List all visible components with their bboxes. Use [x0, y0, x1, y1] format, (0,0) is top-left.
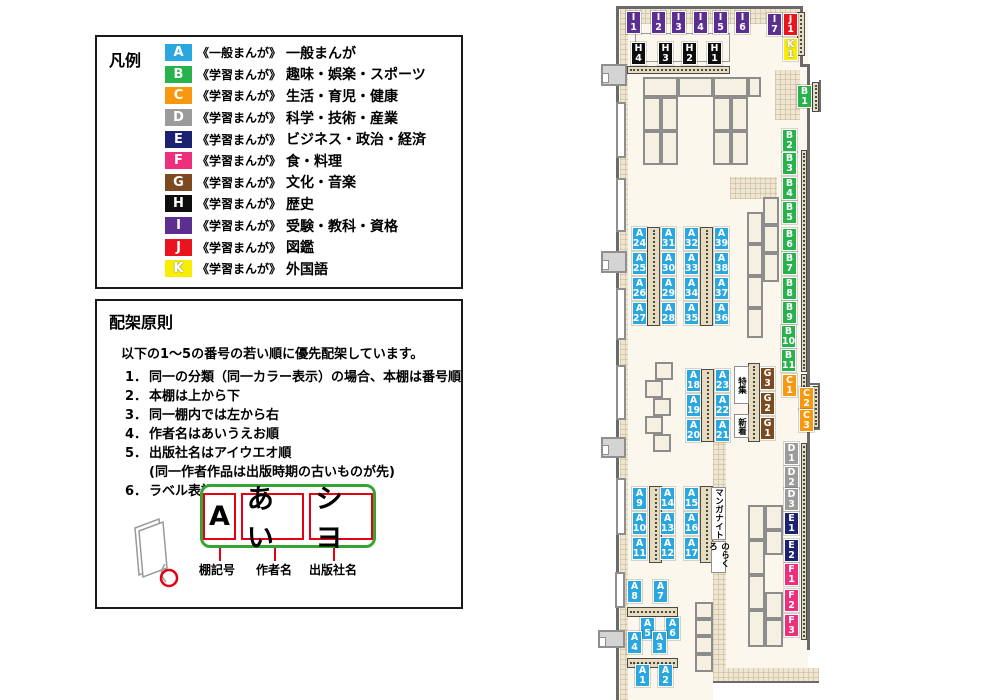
label-letter: B — [801, 87, 808, 97]
legend-category: 外国語 — [286, 259, 328, 279]
window — [616, 365, 626, 420]
label-number: 5 — [644, 629, 651, 639]
reading-table — [763, 225, 779, 253]
legend-type: 《学習まんが》 — [197, 260, 281, 277]
pointer-line — [274, 548, 276, 561]
rule-text: 同一の分類（同一カラー表示）の場合、本棚は番号順 — [149, 368, 461, 387]
label-number: 17 — [685, 549, 698, 559]
legend-type: 《学習まんが》 — [197, 195, 281, 212]
label-letter: A — [664, 489, 671, 499]
label-letter: I — [773, 15, 777, 25]
shelf-label-D1: D1 — [784, 442, 799, 465]
label-letter: E — [788, 514, 795, 524]
shelf-label-I2: I2 — [651, 11, 666, 34]
label-number: 37 — [715, 289, 728, 299]
shelf-label-A9: A9 — [632, 487, 647, 510]
label-number: 2 — [686, 54, 693, 64]
label-number: 3 — [764, 379, 771, 389]
pointer-line — [333, 548, 335, 561]
shelf-label-B9: B9 — [782, 301, 797, 324]
reading-table — [643, 131, 661, 165]
shelf-label-A2: A2 — [658, 664, 673, 687]
shelf-label-A33: A33 — [684, 252, 699, 275]
label-number: 10 — [782, 337, 795, 347]
label-letter: H — [662, 44, 670, 54]
window — [616, 288, 626, 340]
rule-number: 3． — [125, 406, 149, 425]
legend-type: 《一般まんが》 — [197, 44, 281, 61]
label-letter: A — [636, 279, 643, 289]
label-letter: B — [785, 327, 792, 337]
book-icon — [125, 514, 183, 590]
shelf-label-D3: D3 — [784, 488, 799, 511]
label-number: 5 — [786, 213, 793, 223]
label-letter: A — [631, 582, 638, 592]
shelf-label-I3: I3 — [671, 11, 686, 34]
label-letter: F — [788, 616, 795, 626]
annotation-box: 新着 — [734, 414, 749, 438]
legend-type: 《学習まんが》 — [197, 109, 281, 126]
legend-type: 《学習まんが》 — [197, 239, 281, 256]
label-number: 11 — [633, 549, 646, 559]
label-letter: A — [688, 279, 695, 289]
label-number: 23 — [716, 381, 729, 391]
legend-row-E: E《学習まんが》ビジネス・政治・経済 — [165, 128, 455, 150]
shelf-label-A24: A24 — [632, 227, 647, 250]
rule-number: 5． — [125, 444, 149, 463]
label-number: 2 — [788, 478, 795, 488]
label-letter: A — [636, 254, 643, 264]
label-number: 10 — [633, 524, 646, 534]
shelf-label-A32: A32 — [684, 227, 699, 250]
label-letter: A — [636, 514, 643, 524]
label-number: 1 — [788, 524, 795, 534]
shelf-label-F2: F2 — [784, 589, 799, 612]
rule-4: 4．作者名はあいうえお順 — [125, 425, 461, 444]
label-number: 21 — [716, 431, 729, 441]
label-example-frame: A あい シヨ — [200, 484, 376, 548]
label-number: 4 — [635, 54, 642, 64]
reading-table — [748, 505, 765, 540]
label-letter: A — [669, 619, 676, 629]
reading-table — [765, 619, 783, 647]
shelf-label-A25: A25 — [632, 252, 647, 275]
reading-table — [765, 592, 783, 619]
label-letter: A — [718, 304, 725, 314]
label-number: 39 — [715, 239, 728, 249]
shelf-label-B3: B3 — [782, 152, 797, 175]
label-number: 7 — [786, 264, 793, 274]
shelf-label-A6: A6 — [665, 617, 680, 640]
reading-table — [695, 619, 713, 636]
label-letter: A — [690, 396, 697, 406]
legend-category: 文化・音楽 — [286, 172, 356, 192]
label-letter: I — [741, 13, 745, 23]
label-letter: A — [644, 619, 651, 629]
label-letter: G — [764, 369, 772, 379]
shelf-label-A17: A17 — [684, 537, 699, 560]
window — [616, 178, 626, 232]
reading-table — [731, 131, 748, 165]
rule-1: 1．同一の分類（同一カラー表示）の場合、本棚は番号順 — [125, 368, 461, 387]
label-number: 6 — [739, 23, 746, 33]
shelf-label-B6: B6 — [782, 228, 797, 251]
shelf-label-C1: C1 — [782, 374, 797, 397]
legend-type: 《学習まんが》 — [197, 66, 281, 83]
legend-category: 生活・育児・健康 — [286, 86, 398, 106]
shelf-label-B10: B10 — [781, 325, 796, 348]
label-number: 35 — [685, 314, 698, 324]
shelving-principles-panel: 配架原則 以下の1～5の番号の若い順に優先配架しています。 1．同一の分類（同一… — [95, 299, 463, 609]
bookshelf — [627, 607, 678, 617]
label-letter: A — [688, 514, 695, 524]
label-number: 18 — [687, 381, 700, 391]
reading-table — [653, 398, 671, 416]
reading-table — [713, 131, 731, 165]
shelf-label-E2: E2 — [784, 539, 799, 562]
shelf-label-I4: I4 — [693, 11, 708, 34]
shelf-label-B7: B7 — [782, 252, 797, 275]
shelf-label-B2: B2 — [782, 129, 797, 152]
shelf-label-A10: A10 — [632, 512, 647, 535]
label-author-box: あい — [241, 493, 305, 540]
label-letter: A — [719, 421, 726, 431]
rule-number: 4． — [125, 425, 149, 444]
label-number: 6 — [669, 629, 676, 639]
legend-category: 歴史 — [286, 194, 314, 214]
shelf-label-A35: A35 — [684, 302, 699, 325]
legend-type: 《学習まんが》 — [197, 174, 281, 191]
reading-table — [695, 602, 713, 619]
label-number: 4 — [631, 643, 638, 653]
legend-badge-E: E — [165, 131, 192, 148]
label-number: 15 — [685, 499, 698, 509]
label-number: 38 — [715, 264, 728, 274]
legend-row-A: A《一般まんが》一般まんが — [165, 42, 455, 64]
label-number: 20 — [687, 431, 700, 441]
label-number: 9 — [636, 499, 643, 509]
shelf-label-H4: H4 — [631, 42, 646, 65]
label-letter: B — [786, 179, 793, 189]
shelf-label-A30: A30 — [661, 252, 676, 275]
reading-table — [713, 77, 748, 97]
label-number: 1 — [711, 54, 718, 64]
label-letter: A — [690, 371, 697, 381]
label-number: 5 — [717, 23, 724, 33]
label-letter: E — [788, 541, 795, 551]
caption-publisher: 出版社名 — [309, 561, 357, 578]
label-letter: A — [664, 539, 671, 549]
label-letter: A — [665, 229, 672, 239]
legend-row-J: J《学習まんが》図鑑 — [165, 236, 455, 258]
reading-table — [763, 253, 779, 282]
label-letter: A — [688, 254, 695, 264]
legend-category: 趣味・娯楽・スポーツ — [286, 64, 426, 84]
shelf-label-A28: A28 — [661, 302, 676, 325]
reading-table — [655, 362, 673, 380]
label-number: 13 — [661, 524, 674, 534]
legend-row-C: C《学習まんが》生活・育児・健康 — [165, 85, 455, 107]
label-number: 30 — [662, 264, 675, 274]
label-number: 1 — [787, 25, 794, 35]
shelf-label-A13: A13 — [660, 512, 675, 535]
legend-rows: A《一般まんが》一般まんがB《学習まんが》趣味・娯楽・スポーツC《学習まんが》生… — [165, 42, 455, 280]
principles-title: 配架原則 — [97, 301, 461, 333]
label-number: 1 — [630, 23, 637, 33]
wall-segment — [713, 681, 819, 683]
label-number: 27 — [633, 314, 646, 324]
label-letter: A — [662, 666, 669, 676]
label-number: 19 — [687, 406, 700, 416]
label-letter: B — [786, 303, 793, 313]
legend-type: 《学習まんが》 — [197, 87, 281, 104]
label-letter: A — [718, 254, 725, 264]
shelf-label-A38: A38 — [714, 252, 729, 275]
bookshelf — [748, 363, 760, 442]
label-letter: A — [636, 229, 643, 239]
shelf-label-B1: B1 — [797, 85, 812, 108]
rule-5: 5．出版社名はアイウエオ順 — [125, 444, 461, 463]
legend-row-G: G《学習まんが》文化・音楽 — [165, 172, 455, 194]
label-number: 8 — [786, 289, 793, 299]
reading-table — [748, 77, 761, 97]
shelf-label-A19: A19 — [686, 394, 701, 417]
label-letter: A — [657, 582, 664, 592]
wall-segment — [807, 64, 810, 650]
door — [601, 64, 627, 86]
label-letter: A — [688, 304, 695, 314]
reading-table — [748, 540, 765, 575]
bookshelf — [647, 227, 660, 326]
caption-author: 作者名 — [256, 561, 292, 578]
rule-number: 2． — [125, 387, 149, 406]
legend-type: 《学習まんが》 — [197, 217, 281, 234]
label-letter: H — [635, 44, 643, 54]
shelf-label-A16: A16 — [684, 512, 699, 535]
label-number: 1 — [801, 97, 808, 107]
bookshelf — [801, 443, 807, 640]
label-number: 3 — [788, 500, 795, 510]
reading-table — [765, 530, 783, 555]
rule-3: 3．同一棚内では左から右 — [125, 406, 461, 425]
shelf-label-A31: A31 — [661, 227, 676, 250]
shelf-label-A7: A7 — [653, 580, 668, 603]
reading-table — [695, 654, 713, 672]
shelf-label-G1: G1 — [760, 417, 775, 440]
label-letter: F — [788, 591, 795, 601]
legend-row-B: B《学習まんが》趣味・娯楽・スポーツ — [165, 64, 455, 86]
label-letter: A — [664, 514, 671, 524]
window — [616, 102, 626, 158]
shelf-label-A11: A11 — [632, 537, 647, 560]
label-number: 3 — [803, 421, 810, 431]
label-letter: B — [786, 279, 793, 289]
label-letter: B — [786, 131, 793, 141]
label-number: 9 — [786, 313, 793, 323]
label-number: 1 — [639, 676, 646, 686]
shelf-label-A14: A14 — [660, 487, 675, 510]
bookshelf — [701, 369, 714, 442]
label-letter: B — [786, 254, 793, 264]
shelf-label-A8: A8 — [627, 580, 642, 603]
rule-2: 2．本棚は上から下 — [125, 387, 461, 406]
legend-row-K: K《学習まんが》外国語 — [165, 258, 455, 280]
legend-row-H: H《学習まんが》歴史 — [165, 193, 455, 215]
label-number: 33 — [685, 264, 698, 274]
label-number: 8 — [631, 592, 638, 602]
reading-table — [678, 77, 713, 97]
label-number: 2 — [655, 23, 662, 33]
label-letter: I — [719, 13, 723, 23]
legend-badge-C: C — [165, 87, 192, 104]
label-number: 6 — [786, 240, 793, 250]
label-number: 31 — [662, 239, 675, 249]
label-letter: A — [631, 633, 638, 643]
label-number: 2 — [803, 399, 810, 409]
legend-badge-K: K — [165, 260, 192, 277]
label-number: 1 — [788, 575, 795, 585]
window — [615, 572, 625, 608]
reading-table — [747, 308, 763, 338]
label-number: 4 — [786, 189, 793, 199]
shelf-label-H1: H1 — [707, 42, 722, 65]
label-letter: D — [788, 444, 796, 454]
label-number: 2 — [662, 676, 669, 686]
label-number: 4 — [697, 23, 704, 33]
reading-table — [763, 197, 779, 225]
label-number: 29 — [662, 289, 675, 299]
reading-table — [748, 575, 765, 610]
label-number: 1 — [788, 454, 795, 464]
bookshelf — [700, 227, 713, 326]
label-letter: A — [688, 539, 695, 549]
legend-category: 受験・教科・資格 — [286, 216, 398, 236]
shelf-label-A3: A3 — [652, 631, 667, 654]
reading-table — [643, 97, 661, 131]
reading-table — [747, 212, 763, 244]
window — [616, 478, 626, 535]
label-letter: J — [789, 15, 793, 25]
rule-number: 6． — [125, 482, 149, 501]
shelf-label-I6: I6 — [735, 11, 750, 34]
shelf-label-F1: F1 — [784, 563, 799, 586]
legend-badge-I: I — [165, 217, 192, 234]
shelf-label-E1: E1 — [784, 512, 799, 535]
annotation-box: のらくろ — [711, 541, 726, 573]
shelf-label-A21: A21 — [715, 419, 730, 442]
shelf-label-A39: A39 — [714, 227, 729, 250]
label-letter: B — [786, 230, 793, 240]
label-letter: A — [688, 489, 695, 499]
label-shelf-code-box: A — [203, 493, 236, 540]
wall-segment — [819, 80, 821, 112]
legend-badge-G: G — [165, 174, 192, 191]
legend-category: 図鑑 — [286, 237, 314, 257]
shelf-label-J1: J1 — [783, 13, 798, 36]
shelf-label-A4: A4 — [627, 631, 642, 654]
label-letter: A — [665, 279, 672, 289]
rule-text: 同一棚内では左から右 — [149, 406, 279, 425]
shelf-label-F3: F3 — [784, 614, 799, 637]
reading-table — [748, 610, 765, 647]
shelf-label-A36: A36 — [714, 302, 729, 325]
shelf-label-D2: D2 — [784, 466, 799, 489]
bookshelf — [801, 150, 807, 372]
label-letter: C — [786, 376, 793, 386]
legend-panel: 凡例 A《一般まんが》一般まんがB《学習まんが》趣味・娯楽・スポーツC《学習まん… — [95, 35, 463, 289]
legend-badge-H: H — [165, 195, 192, 212]
door — [598, 630, 625, 648]
rule-text: 本棚は上から下 — [149, 387, 240, 406]
label-letter: B — [786, 154, 793, 164]
rule-text: 作者名はあいうえお順 — [149, 425, 279, 444]
label-number: 12 — [661, 549, 674, 559]
reading-table — [645, 380, 663, 398]
reading-table — [643, 77, 678, 97]
label-number: 3 — [786, 164, 793, 174]
label-letter: B — [785, 351, 792, 361]
caption-shelf-code: 棚記号 — [199, 561, 235, 578]
label-letter: A — [719, 371, 726, 381]
reading-table — [747, 276, 763, 308]
label-number: 28 — [662, 314, 675, 324]
label-number: 3 — [788, 626, 795, 636]
label-letter: A — [690, 421, 697, 431]
legend-row-F: F《学習まんが》食・料理 — [165, 150, 455, 172]
bookshelf — [812, 82, 819, 112]
label-number: 7 — [771, 25, 778, 35]
shelf-label-A1: A1 — [635, 664, 650, 687]
shelf-label-A23: A23 — [715, 369, 730, 392]
label-letter: A — [719, 396, 726, 406]
label-number: 24 — [633, 239, 646, 249]
shelf-label-B8: B8 — [782, 277, 797, 300]
legend-category: ビジネス・政治・経済 — [286, 129, 426, 149]
label-number: 22 — [716, 406, 729, 416]
wall-segment — [617, 6, 803, 9]
label-letter: I — [677, 13, 681, 23]
reading-table — [713, 97, 731, 131]
label-number: 3 — [656, 643, 663, 653]
shelf-label-C3: C3 — [799, 409, 814, 432]
label-number: 3 — [675, 23, 682, 33]
legend-badge-D: D — [165, 109, 192, 126]
rule-text: 出版社名はアイウエオ順 — [149, 444, 291, 463]
label-number: 36 — [715, 314, 728, 324]
reading-table — [747, 244, 763, 276]
label-letter: C — [803, 389, 810, 399]
label-letter: A — [718, 279, 725, 289]
shelf-label-A27: A27 — [632, 302, 647, 325]
pointer-line — [219, 548, 221, 561]
label-letter: I — [632, 13, 636, 23]
label-letter: G — [764, 394, 772, 404]
reading-table — [661, 131, 678, 165]
label-letter: A — [665, 304, 672, 314]
shelf-label-A18: A18 — [686, 369, 701, 392]
reading-table — [661, 97, 678, 131]
label-number: 7 — [657, 592, 664, 602]
reading-table — [653, 434, 671, 452]
door — [601, 251, 627, 273]
label-number: 1 — [764, 429, 771, 439]
shelf-label-B4: B4 — [782, 177, 797, 200]
label-number: 1 — [786, 386, 793, 396]
label-letter: F — [788, 565, 795, 575]
label-letter: A — [639, 666, 646, 676]
shelf-label-G3: G3 — [760, 367, 775, 390]
label-number: 32 — [685, 239, 698, 249]
